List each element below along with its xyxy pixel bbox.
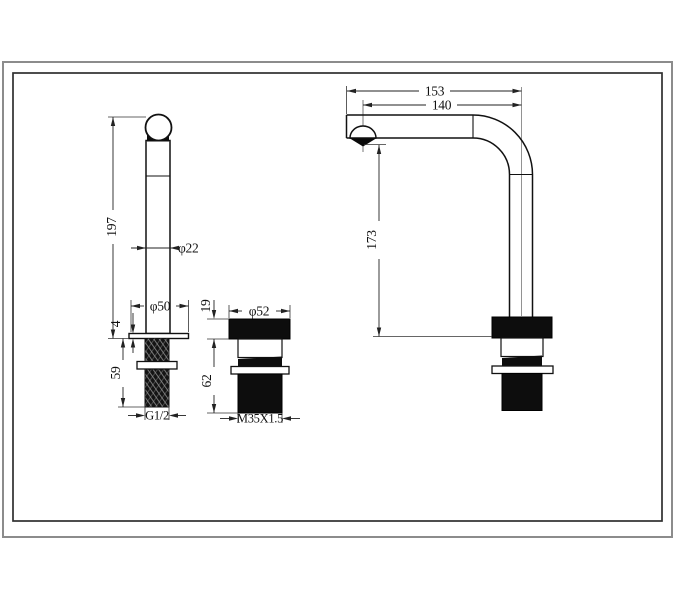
dim-label-4: 4 xyxy=(108,320,123,327)
dim-label-g12: G1/2 xyxy=(145,409,169,423)
dim-label-173: 173 xyxy=(364,230,379,250)
spout-pipe xyxy=(510,175,533,318)
dim-label-153: 153 xyxy=(425,84,445,99)
cartridge-neck xyxy=(238,339,282,358)
spout-view: 153 140 173 xyxy=(347,84,554,411)
cartridge-flange xyxy=(231,367,289,375)
dim-label-phi22: φ22 xyxy=(178,241,198,256)
drawing-sheet: 197 φ22 φ50 4 xyxy=(0,0,675,600)
spout-base-flange xyxy=(492,366,553,374)
dim-label-m35: M35X1.5 xyxy=(237,412,283,426)
dim-outlet-height xyxy=(364,145,492,337)
handle-view: 197 φ22 φ50 4 xyxy=(104,115,198,423)
spout-elbow xyxy=(473,115,533,175)
spout-outlet-tip xyxy=(350,126,376,147)
spout-base-neck xyxy=(501,338,543,357)
handle-thread-texture xyxy=(145,339,169,408)
dim-label-62: 62 xyxy=(199,375,214,388)
dim-label-197: 197 xyxy=(104,217,119,237)
dim-label-140: 140 xyxy=(432,98,452,113)
dim-label-phi50: φ50 xyxy=(150,299,171,314)
dim-label-59: 59 xyxy=(108,366,123,379)
outer-border xyxy=(3,62,672,537)
handle-locknut xyxy=(137,362,177,370)
dim-label-phi52: φ52 xyxy=(249,304,269,319)
dim-label-19: 19 xyxy=(198,299,213,312)
spout-threaded-shank xyxy=(502,374,542,411)
handle-base-flange xyxy=(129,334,189,339)
cartridge-threaded-shank xyxy=(238,374,282,413)
cartridge-view: φ52 19 62 M35X1.5 xyxy=(198,299,300,425)
handle-knob xyxy=(146,115,172,141)
technical-drawing: 197 φ22 φ50 4 xyxy=(0,0,675,600)
spout-base-cap xyxy=(492,317,552,338)
sheet-border xyxy=(3,62,672,537)
cartridge-cap xyxy=(229,319,290,339)
inner-border xyxy=(13,73,662,521)
